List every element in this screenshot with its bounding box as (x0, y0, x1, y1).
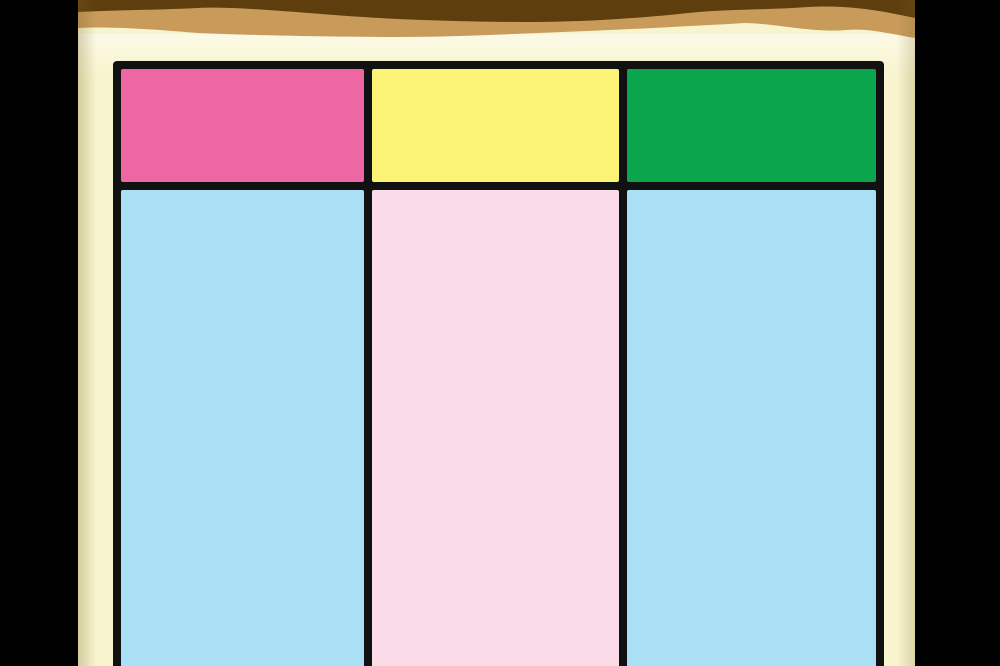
blank-chart-table (113, 61, 884, 666)
banner-waves (78, 0, 915, 62)
header-cell-column-3 (627, 69, 876, 182)
page-edge-shade-right (897, 0, 915, 666)
body-cell-column-3 (627, 190, 876, 666)
letterbox-bar-right (915, 0, 1000, 666)
page-edge-shade-left (78, 0, 96, 666)
header-cell-column-2 (372, 69, 619, 182)
video-frame (0, 0, 1000, 666)
body-cell-column-2 (372, 190, 619, 666)
body-cell-column-1 (121, 190, 364, 666)
header-cell-column-1 (121, 69, 364, 182)
letterbox-bar-left (0, 0, 78, 666)
paper-page (78, 0, 915, 666)
